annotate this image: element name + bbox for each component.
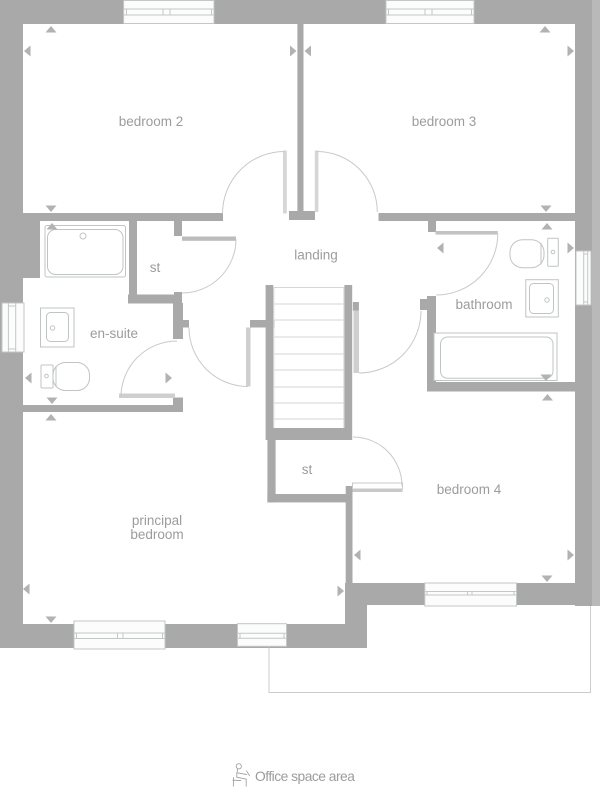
- svg-text:Office space area: Office space area: [255, 769, 355, 784]
- svg-text:bedroom 2: bedroom 2: [119, 114, 184, 129]
- svg-text:principal: principal: [132, 513, 182, 528]
- svg-text:bathroom: bathroom: [455, 297, 512, 312]
- svg-text:en-suite: en-suite: [90, 326, 138, 341]
- svg-text:bedroom 4: bedroom 4: [437, 482, 502, 497]
- svg-text:bedroom 3: bedroom 3: [412, 114, 477, 129]
- svg-text:st: st: [302, 462, 313, 477]
- svg-text:st: st: [150, 260, 161, 275]
- svg-text:bedroom: bedroom: [130, 527, 183, 542]
- svg-text:landing: landing: [294, 248, 338, 263]
